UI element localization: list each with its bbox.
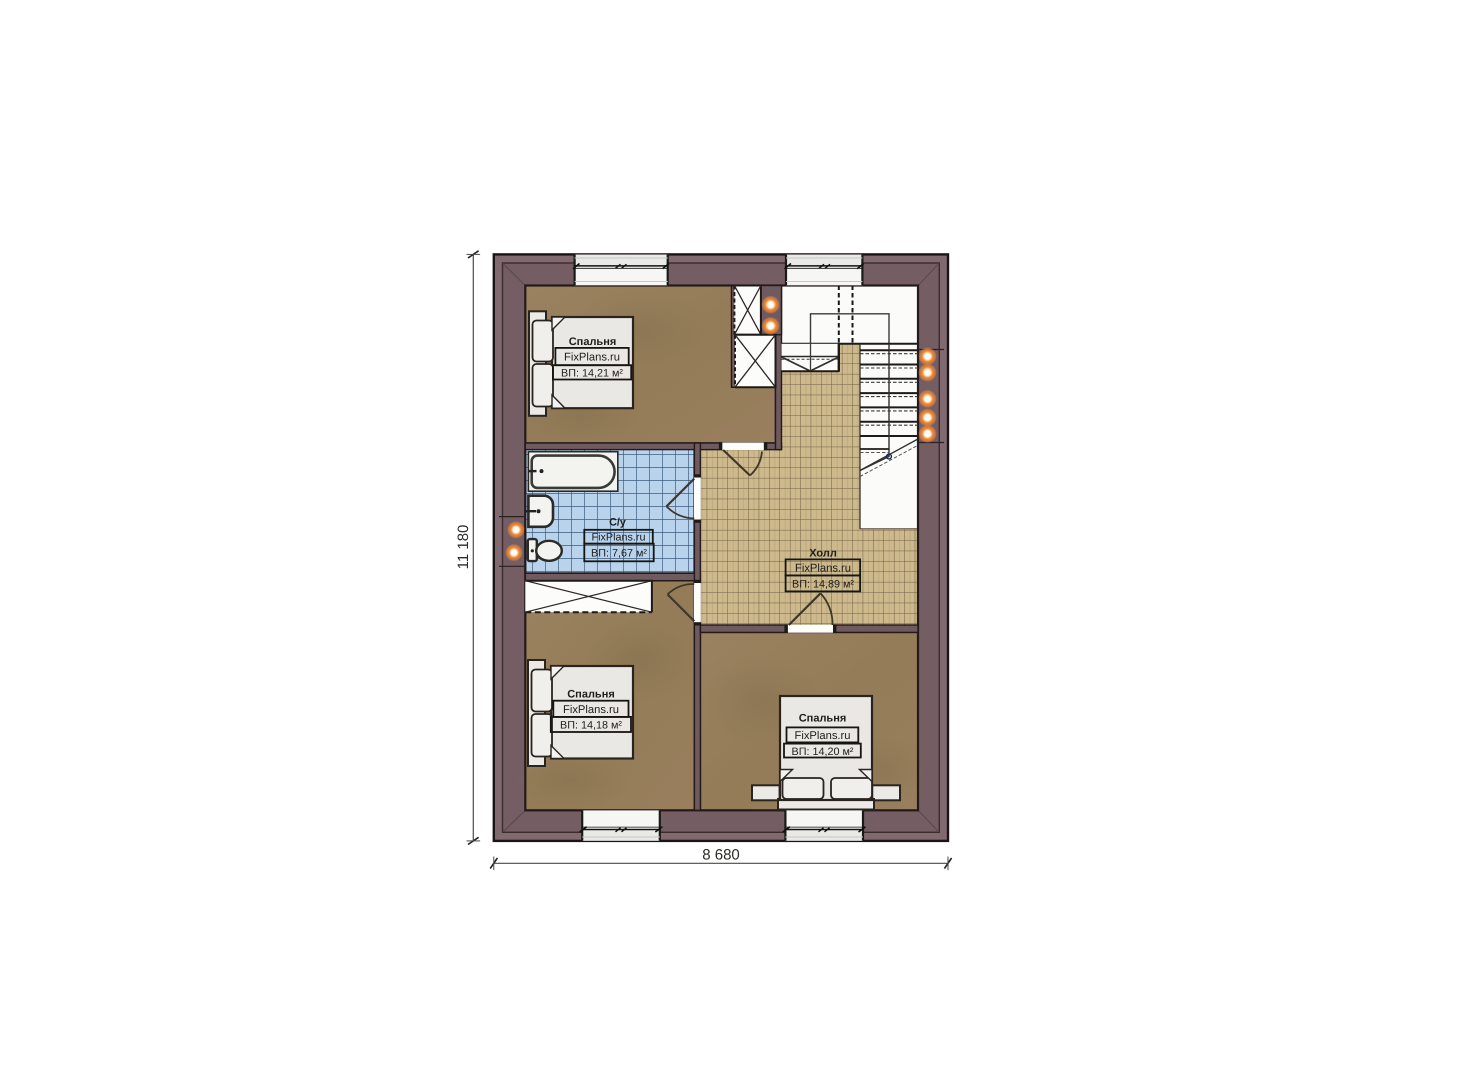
svg-text:8 680: 8 680 xyxy=(702,847,740,864)
svg-text:11 180: 11 180 xyxy=(455,525,472,570)
svg-text:FixPlans.ru: FixPlans.ru xyxy=(563,704,619,716)
svg-text:FixPlans.ru: FixPlans.ru xyxy=(795,563,851,575)
svg-text:Спальня: Спальня xyxy=(567,689,615,701)
svg-text:ВП: 14,89 м²: ВП: 14,89 м² xyxy=(792,579,854,591)
svg-text:ВП: 14,18 м²: ВП: 14,18 м² xyxy=(560,720,622,732)
svg-text:ВП: 14,21 м²: ВП: 14,21 м² xyxy=(561,367,623,379)
svg-text:Спальня: Спальня xyxy=(569,336,617,348)
svg-text:Холл: Холл xyxy=(809,548,837,560)
svg-text:ВП: 7,67 м²: ВП: 7,67 м² xyxy=(591,548,647,560)
svg-text:FixPlans.ru: FixPlans.ru xyxy=(564,352,620,364)
svg-text:FixPlans.ru: FixPlans.ru xyxy=(591,532,645,544)
svg-text:ВП: 14,20 м²: ВП: 14,20 м² xyxy=(792,746,854,758)
svg-text:Спальня: Спальня xyxy=(799,713,847,725)
svg-text:С/у: С/у xyxy=(609,517,626,529)
svg-text:FixPlans.ru: FixPlans.ru xyxy=(795,730,851,742)
